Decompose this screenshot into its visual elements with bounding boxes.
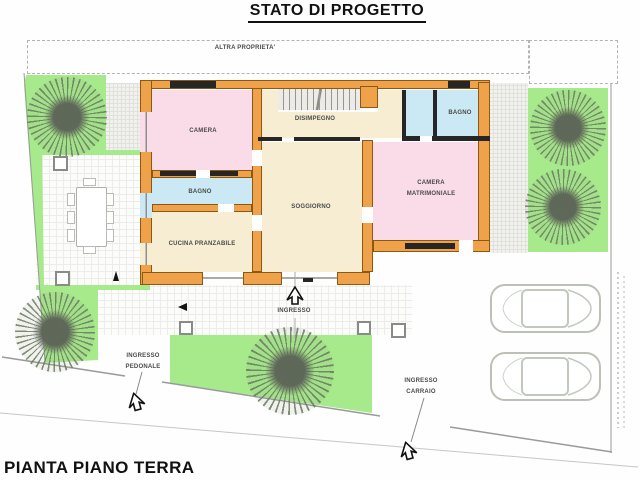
wall (252, 88, 262, 272)
patio-table (76, 187, 107, 247)
door-opening (252, 150, 262, 166)
pergola-post (53, 156, 68, 171)
car-icon (488, 349, 603, 404)
tree-icon (530, 90, 606, 166)
patio-chair (83, 246, 96, 254)
pergola-post (357, 321, 371, 335)
partition-wall (258, 137, 282, 141)
window (203, 277, 243, 279)
window (170, 81, 216, 88)
room-label-soggiorno: SOGGIORNO (291, 202, 330, 213)
floor-plan-canvas: STATO DI PROGETTO ALTRA PROPRIETA' (0, 0, 640, 480)
patio-chair (83, 178, 96, 186)
wall (478, 82, 490, 252)
room-label-disimpegno: DISIMPEGNO (295, 114, 335, 125)
wall (337, 272, 370, 285)
wall (360, 86, 378, 108)
patio-chair (67, 229, 75, 242)
partition-wall (294, 137, 360, 141)
partition-wall (433, 90, 437, 136)
window (405, 243, 455, 249)
partition-wall (210, 171, 238, 176)
wall (362, 140, 373, 272)
tree-icon (27, 77, 107, 157)
patio-chair (106, 211, 114, 224)
wall (142, 272, 203, 285)
partition-wall (402, 136, 420, 141)
staircase (278, 88, 360, 110)
plan-caption: PIANTA PIANO TERRA (4, 458, 194, 478)
main-entrance-label: INGRESSO (277, 306, 310, 317)
door-opening (459, 240, 473, 252)
entrance-arrow-icon (285, 286, 305, 306)
window (140, 112, 152, 152)
pergola-post (55, 271, 70, 286)
window (448, 81, 470, 88)
room-label-camera: CAMERA (189, 126, 217, 137)
tree-icon (246, 327, 334, 415)
arrow-left-icon (178, 303, 187, 311)
door-opening (252, 215, 262, 231)
partition-wall (160, 171, 196, 176)
partition-wall (402, 90, 406, 136)
pergola-post (179, 321, 193, 335)
door-opening (218, 204, 234, 212)
vehicle-entrance-label: INGRESSO CARRAIO (397, 376, 445, 398)
patio-chair (67, 211, 75, 224)
partition-wall (432, 136, 490, 141)
room-label-cucina: CUCINA PRANZABILE (169, 239, 236, 250)
patio-chair (106, 193, 114, 206)
car-icon (488, 281, 603, 336)
pergola-post (391, 323, 406, 338)
door-opening (196, 170, 210, 178)
room-label-bagno-left: BAGNO (188, 187, 211, 198)
window (140, 243, 152, 265)
door-threshold (303, 278, 313, 282)
patio-chair (67, 193, 75, 206)
room-disimpegno (378, 90, 402, 138)
arrow-up-icon (113, 271, 119, 281)
tree-icon (525, 169, 601, 245)
window (140, 193, 152, 218)
room-disimpegno (262, 90, 278, 112)
door-opening (362, 207, 373, 223)
patio-chair (106, 229, 114, 242)
pedestrian-entrance-label: INGRESSO PEDONALE (117, 351, 169, 373)
wall (243, 272, 282, 285)
tree-icon (15, 292, 95, 372)
wall (152, 204, 252, 212)
room-wc (406, 90, 433, 136)
room-label-camera-matrimoniale: CAMERA MATRIMONIALE (395, 178, 467, 200)
room-label-bagno-top: BAGNO (448, 108, 471, 119)
